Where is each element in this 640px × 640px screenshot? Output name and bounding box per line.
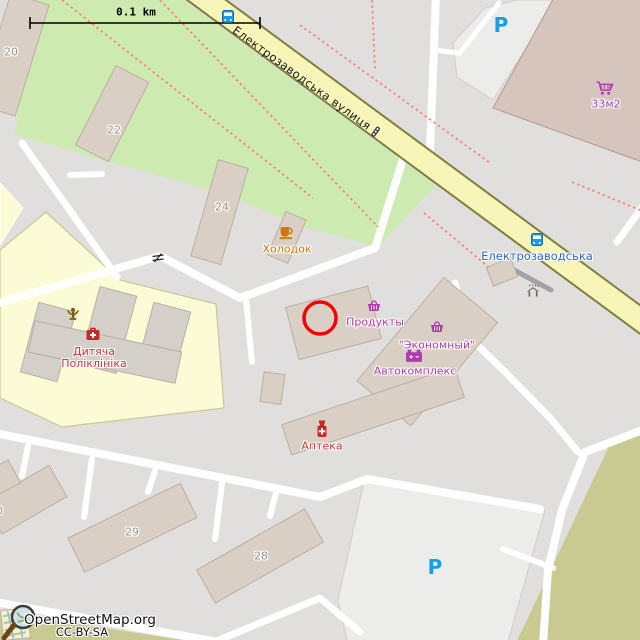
- building-number-29: 29: [125, 526, 139, 539]
- first-aid-kit-icon: [86, 328, 101, 341]
- poi-label-apteka: Аптека: [301, 440, 342, 453]
- shop-basket-icon: [430, 321, 445, 333]
- poi-label-33m2: 33м2: [591, 98, 620, 111]
- map-canvas[interactable]: Електрозаводська вулиця 0.1 km 20 22 24 …: [0, 0, 640, 640]
- attribution-license: CC-BY-SA: [56, 625, 108, 639]
- building-number-28: 28: [254, 550, 268, 563]
- scale-bar-label: 0.1 km: [116, 6, 156, 19]
- bus-icon: [531, 233, 544, 247]
- road-north-branch: [433, 50, 459, 53]
- shopping-cart-icon: [596, 81, 615, 96]
- poi-label-holodok: Холодок: [262, 243, 311, 256]
- shelter-icon: [526, 285, 541, 298]
- building-small-center: [260, 372, 285, 405]
- bus-icon: [222, 10, 235, 24]
- bus-stop-label: Електрозаводська: [481, 249, 593, 263]
- poi-label-avtokompleks: Автокомплекс: [374, 365, 457, 378]
- fountain-icon: [67, 308, 80, 321]
- poi-label-ekonomny: "Экономный": [399, 339, 475, 352]
- parking-symbol-bottom: P: [428, 555, 443, 579]
- cafe-cup-icon: [279, 226, 296, 240]
- parking-symbol-top: P: [494, 13, 509, 37]
- building-number-30: 30: [0, 505, 3, 518]
- pharmacy-bottle-icon: [316, 421, 328, 438]
- gate-icon: [152, 253, 165, 264]
- building-number-24: 24: [215, 201, 229, 214]
- polyclinic-label-line2: Поліклініка: [61, 358, 126, 370]
- shop-basket-icon: [367, 300, 382, 312]
- poi-label-polyclinic: Дитяча Поліклініка: [61, 346, 126, 370]
- building-number-22: 22: [107, 124, 121, 137]
- poi-label-produkty: Продукты: [346, 316, 404, 329]
- road-west-branch: [70, 174, 102, 175]
- building-number-20: 20: [4, 46, 18, 59]
